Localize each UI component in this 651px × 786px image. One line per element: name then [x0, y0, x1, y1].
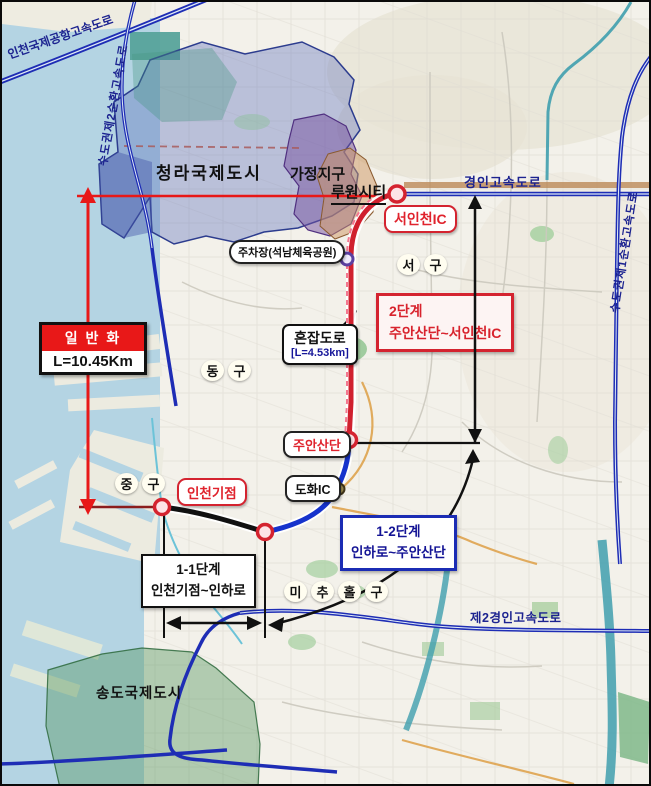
label-gyeongin2-expressway: 제2경인고속도로: [470, 607, 561, 626]
label-district-michuhol: 미추홀구: [282, 581, 390, 602]
map-screenshot: 인천국제공항고속도로 수도권제2순환고속도로 수도권제1순환고속도로 경인고속도…: [0, 0, 651, 786]
generalization-title: 일 반 화: [42, 325, 144, 351]
district-char: 구: [228, 360, 251, 381]
callout-phase1-1: 1-1단계 인천기점~인하로: [141, 554, 256, 608]
phase2-line2: 주안산단~서인천IC: [389, 323, 501, 345]
district-char: 서: [397, 254, 420, 275]
district-char: 미: [284, 581, 307, 602]
district-char: 홀: [338, 581, 361, 602]
phase1-1-line2: 인천기점~인하로: [151, 581, 246, 602]
badge-seoincheon-ic: 서인천IC: [384, 205, 457, 233]
badge-dohwa-ic: 도화IC: [285, 475, 341, 502]
district-char: 구: [365, 581, 388, 602]
callout-phase2: 2단계 주안산단~서인천IC: [376, 293, 514, 352]
label-district-dong: 동구: [199, 360, 253, 381]
callout-congested-road: 혼잡도로 [L=4.53km]: [282, 324, 358, 365]
badge-parking: 주차장(석남체육공원): [229, 240, 345, 264]
label-luone: 루원시티: [331, 181, 386, 205]
label-district-seo: 서구: [395, 254, 449, 275]
phase1-1-line1: 1-1단계: [151, 560, 246, 581]
label-cheongna: 청라국제도시: [156, 159, 262, 184]
marker-incheon-start: [155, 500, 170, 515]
generalization-length: L=10.45Km: [42, 351, 144, 372]
phase2-line1: 2단계: [389, 301, 501, 323]
label-songdo: 송도국제도시: [96, 682, 182, 703]
phase1-2-line1: 1-2단계: [351, 522, 446, 543]
district-char: 동: [201, 360, 224, 381]
callout-generalization: 일 반 화 L=10.45Km: [39, 322, 147, 375]
marker-seoincheon-ic: [389, 186, 405, 202]
badge-juan: 주안산단: [283, 431, 351, 458]
phase1-2-line2: 인하로~주안산단: [351, 543, 446, 564]
badge-incheon-start: 인천기점: [177, 478, 247, 506]
district-char: 구: [424, 254, 447, 275]
map-canvas: [2, 2, 651, 786]
congested-length: [L=4.53km]: [291, 347, 349, 360]
district-char: 추: [311, 581, 334, 602]
callout-phase1-2: 1-2단계 인하로~주안산단: [340, 515, 457, 571]
congested-title: 혼잡도로: [291, 329, 349, 347]
district-char: 구: [142, 473, 165, 494]
district-char: 중: [115, 473, 138, 494]
label-gyeongin-expressway: 경인고속도로: [464, 172, 542, 191]
marker-inharo: [258, 525, 273, 540]
label-district-jung: 중구: [113, 473, 167, 494]
